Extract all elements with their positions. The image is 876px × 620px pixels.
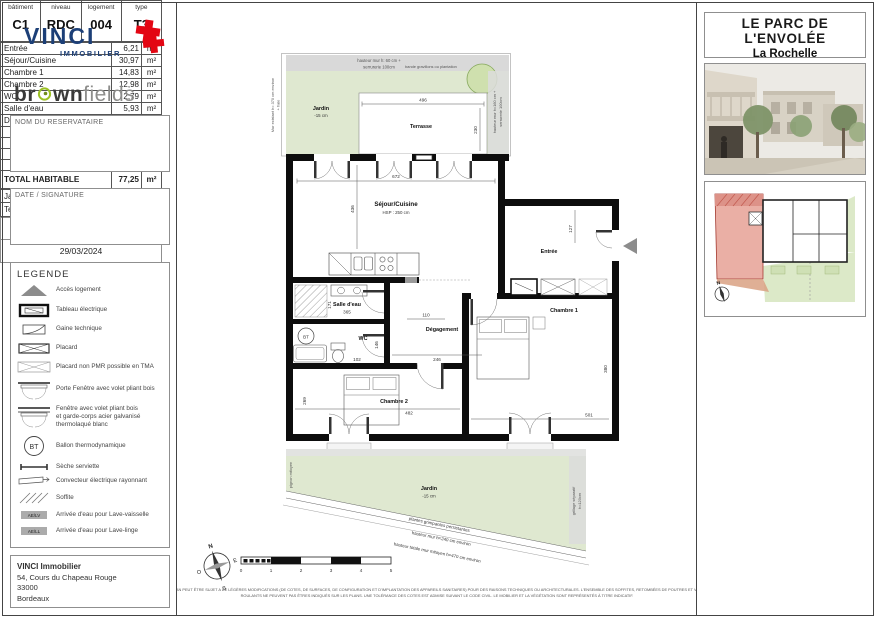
- reservataire-label: NOM DU RESERVATAIRE: [11, 116, 169, 126]
- center-right-divider: [696, 2, 697, 616]
- pignon-note: pignon mitoyen: [288, 462, 293, 488]
- garden-bottom: Jardin -15 cm plantes grimpantes persist…: [283, 449, 589, 565]
- chambre2-depth-dim: 269: [302, 397, 307, 405]
- technical-duct-icon: [15, 323, 53, 336]
- legend-item-ae-ll: AE/LL Arrivée d'eau pour Lave-linge: [15, 526, 165, 536]
- project-title-block: LE PARC DE L'ENVOLÉE La Rochelle: [704, 12, 866, 58]
- entree-label: Entrée: [541, 249, 558, 255]
- walls: [286, 154, 619, 441]
- chambre2-label: Chambre 2: [380, 399, 408, 405]
- legend-item-placard-tma: Placard non PMR possible en TMA: [15, 360, 165, 374]
- project-photo: [704, 63, 866, 175]
- right-wall-note-1: hauteur mur h=160 cm +: [492, 90, 497, 133]
- terrace-label: Terrasse: [410, 124, 432, 130]
- salle-eau-depth-dim: 171: [327, 301, 332, 309]
- gravel-band-note: bande gravillons ou plantation: [405, 64, 457, 69]
- room-wc: BT WC 146 102: [294, 328, 385, 363]
- legend-title: LEGENDE: [11, 263, 169, 284]
- svg-text:AE/LV: AE/LV: [28, 513, 40, 518]
- legend-item-seche-serviette: Sèche serviette: [15, 463, 165, 471]
- electrical-panel-icon: [15, 303, 53, 318]
- project-title-line2: L'ENVOLÉE: [705, 32, 865, 47]
- right-wall-note-2: serrurerie 100cm: [498, 97, 503, 126]
- legend-item-gaine: Gaine technique: [15, 323, 165, 336]
- legend-label: Soffite: [53, 494, 74, 502]
- legend-label: Fenêtre avec volet pliant bois et garde-…: [53, 405, 140, 430]
- svg-text:O: O: [196, 569, 203, 576]
- window-guardrail-icon: [15, 405, 53, 429]
- existing-wall-note-1: Mur existant h= 370 cm environ: [270, 78, 275, 132]
- brownfields-wn: wn: [53, 83, 83, 107]
- existing-wall-note-2: + haie: [276, 100, 281, 111]
- room-chambre1: Chambre 1 501 380: [471, 293, 610, 450]
- convector-icon: [15, 476, 53, 485]
- legend-item-placard: Placard: [15, 342, 165, 355]
- french-door-icon: [15, 380, 53, 400]
- svg-text:1: 1: [270, 568, 273, 573]
- legend-item-bt: BT Ballon thermodynamique: [15, 435, 165, 457]
- vinci-logo-text: VINCI: [24, 23, 95, 49]
- legend-label: Convecteur électrique rayonnant: [53, 477, 147, 485]
- legend-item-acces: Accès logement: [15, 284, 165, 297]
- legend-item-ae-lv: AE/LV Arrivée d'eau pour Lave-vaisselle: [15, 510, 165, 520]
- developer-address: VINCI Immobilier 54, Cours du Chapeau Ro…: [10, 555, 170, 608]
- scale-bar: 0 1 2 3 4 5: [240, 557, 393, 573]
- degagement-dim-246: 246: [433, 357, 441, 362]
- top-wall-note-1: hauteur mur h: 60 cm +: [357, 58, 401, 63]
- svg-text:BT: BT: [30, 444, 40, 451]
- wc-width-dim: 102: [353, 357, 361, 362]
- svg-text:E: E: [233, 558, 239, 565]
- highlighted-unit: [715, 194, 769, 279]
- sejour-width-dim: 672: [392, 174, 400, 179]
- garden-bottom-level: -15 cm: [422, 494, 436, 499]
- degagement-label: Dégagement: [426, 327, 459, 333]
- top-wall-note-2: serrurerie 100cm: [363, 65, 395, 70]
- garden-bottom-label: Jardin: [421, 486, 437, 492]
- soffit-hatch: [295, 285, 327, 317]
- chambre1-label: Chambre 1: [550, 308, 578, 314]
- legend-label: Arrivée d'eau pour Lave-linge: [53, 527, 138, 535]
- grillage-note-1: grillage séparatif: [571, 486, 576, 515]
- terrace-area: Terrasse 496 230: [359, 93, 487, 154]
- chambre2-width-dim: 482: [405, 411, 413, 416]
- bed-chambre1: [477, 317, 529, 379]
- legend-label: Gaine technique: [53, 325, 102, 333]
- brownfields-logo: brwnfields: [14, 80, 170, 110]
- brownfields-fields: fields: [83, 83, 135, 107]
- note-mur-240: hauteur mur h=240 cm environ: [411, 530, 471, 547]
- room-salle-eau: Salle d'eau 365 171: [295, 285, 384, 317]
- toilet-icon: [331, 343, 345, 350]
- legend-item-convecteur: Convecteur électrique rayonnant: [15, 476, 165, 485]
- salle-eau-label: Salle d'eau: [333, 302, 361, 308]
- vinci-logo: VINCI IMMOBILIER: [18, 14, 168, 72]
- brownfields-leaf-icon: [37, 83, 52, 107]
- date-signature-field[interactable]: DATE / SIGNATURE: [10, 188, 170, 245]
- sejour-depth-dim: 436: [350, 205, 355, 213]
- developer-postal: 33000: [17, 583, 163, 594]
- developer-city: Bordeaux: [17, 594, 163, 605]
- water-inlet-lv-icon: AE/LV: [15, 510, 53, 520]
- legend-label: Sèche serviette: [53, 463, 99, 471]
- legend-panel: LEGENDE Accès logement Tableau électriqu…: [10, 262, 170, 548]
- legend-label: Placard non PMR possible en TMA: [53, 363, 154, 371]
- garden-top-level: -15 cm: [314, 113, 328, 118]
- closet-icon: [15, 342, 53, 355]
- closet-tma-icon: [15, 360, 53, 374]
- svg-text:0: 0: [240, 568, 243, 573]
- date-signature-label: DATE / SIGNATURE: [11, 189, 169, 199]
- legend-item-fenetre: Fenêtre avec volet pliant bois et garde-…: [15, 405, 165, 430]
- legend-label: Porte Fenêtre avec volet pliant bois: [53, 385, 155, 393]
- brownfields-br: br: [14, 83, 36, 107]
- developer-name: VINCI Immobilier: [17, 561, 163, 573]
- disclaimer-line1: CE PLAN PEUT ÊTRE SUJET A DE LÉGÈRES MOD…: [177, 587, 696, 592]
- legend-item-porte-fenetre: Porte Fenêtre avec volet pliant bois: [15, 380, 165, 400]
- small-window: [416, 155, 432, 160]
- svg-text:5: 5: [390, 568, 393, 573]
- legend-item-tableau: Tableau électrique: [15, 303, 165, 318]
- legend-label: Tableau électrique: [53, 306, 107, 314]
- garden-top-label: Jardin: [313, 106, 329, 112]
- bt-circle-icon: BT: [15, 435, 53, 457]
- terrace-depth-dim: 230: [473, 126, 478, 134]
- sejour-label: Séjour/Cuisine: [374, 201, 418, 208]
- access-triangle: [623, 238, 637, 254]
- svg-text:AE/LL: AE/LL: [28, 529, 41, 534]
- disclaimer: CE PLAN PEUT ÊTRE SUJET A DE LÉGÈRES MOD…: [177, 587, 696, 598]
- vinci-red-cross-icon: [135, 18, 165, 54]
- disclaimer-line2: ROULANTS NE PEUVENT PAS ÊTRES INDIQUÉS S…: [241, 593, 634, 598]
- wc-depth-dim: 146: [374, 341, 379, 349]
- legend-label: Ballon thermodynamique: [53, 442, 126, 450]
- developer-street: 54, Cours du Chapeau Rouge: [17, 573, 163, 584]
- legend-label: Arrivée d'eau pour Lave-vaisselle: [53, 511, 149, 519]
- legend-item-soffite: Soffite: [15, 491, 165, 505]
- vinci-division-text: IMMOBILIER: [60, 49, 121, 58]
- legend-label: Placard: [53, 344, 77, 352]
- entree-depth-dim: 127: [568, 225, 573, 233]
- water-inlet-ll-icon: AE/LL: [15, 526, 53, 536]
- ae-lv-mark: [405, 277, 417, 283]
- access-triangle-icon: [15, 284, 53, 297]
- chambre1-depth-dim: 380: [603, 365, 608, 373]
- degagement-dim-110: 110: [422, 313, 430, 318]
- bt-tank-label: BT: [303, 335, 309, 340]
- svg-text:3: 3: [330, 568, 333, 573]
- soffit-icon: [15, 491, 53, 505]
- floor-plan-panel: hauteur mur h: 60 cm + serrurerie 100cm …: [177, 3, 696, 615]
- svg-text:4: 4: [360, 568, 363, 573]
- sejour-hsp: HSP : 250 cm: [382, 210, 409, 215]
- project-city: La Rochelle: [705, 48, 865, 60]
- reservataire-field[interactable]: NOM DU RESERVATAIRE: [10, 115, 170, 172]
- svg-text:2: 2: [300, 568, 303, 573]
- site-key-plan: N: [704, 181, 866, 317]
- chambre1-width-dim: 501: [585, 413, 593, 418]
- svg-text:N: N: [208, 543, 214, 550]
- project-title-line1: LE PARC DE: [705, 17, 865, 32]
- grillage-note-2: h=120cm: [577, 493, 582, 509]
- salle-eau-width-dim: 365: [343, 310, 351, 315]
- towel-dryer-icon: [15, 463, 53, 471]
- terrace-width-dim: 496: [419, 98, 427, 103]
- legend-label: Accès logement: [53, 286, 101, 294]
